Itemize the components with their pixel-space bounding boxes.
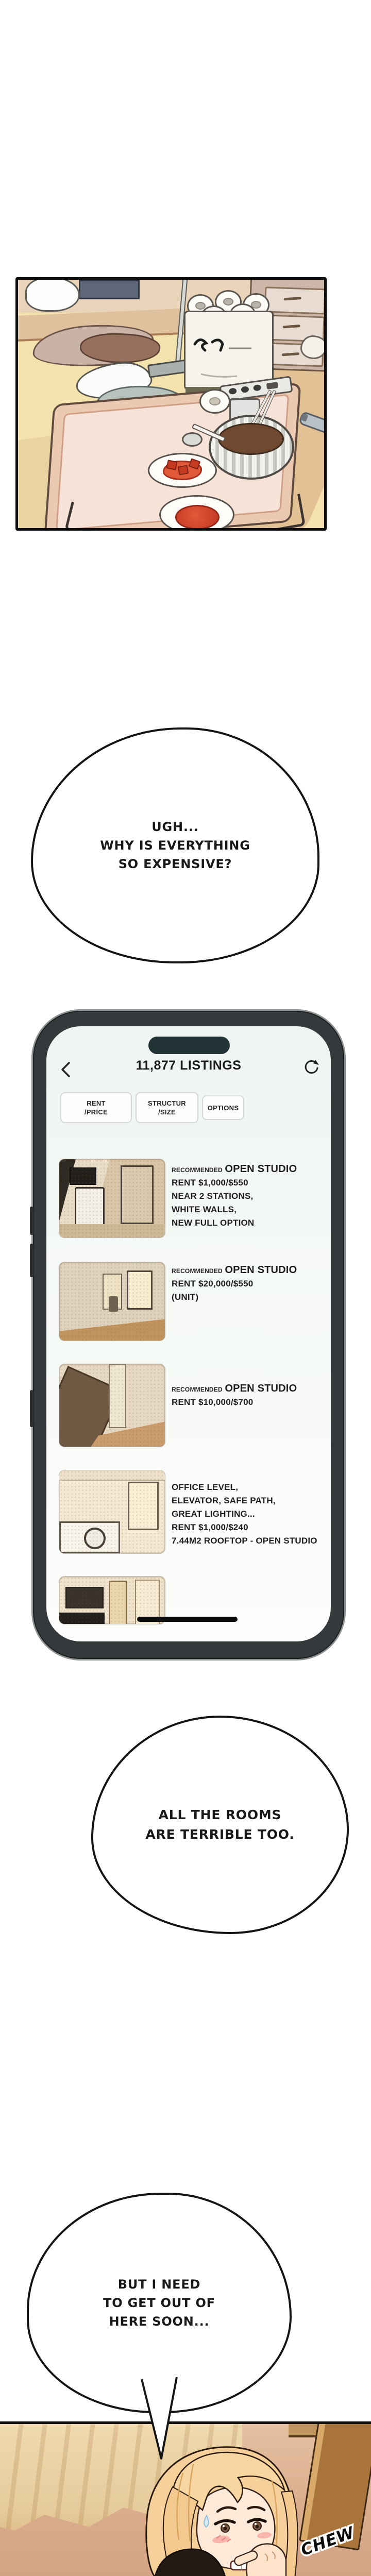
volume-down-button[interactable] xyxy=(30,1244,33,1277)
table-leg xyxy=(269,494,306,531)
plate-sauce xyxy=(159,495,234,531)
crumpled-paper xyxy=(300,335,327,359)
panel-kitchen xyxy=(15,277,327,531)
filter-structure-size[interactable]: STRUCTUR /SIZE xyxy=(136,1092,198,1123)
listing-row[interactable]: RECOMMENDED OPEN STUDIO RENT $20,000/$55… xyxy=(59,1262,331,1350)
refresh-icon xyxy=(302,1059,319,1077)
toilet-paper-pack xyxy=(184,290,275,389)
listing-badge: RECOMMENDED xyxy=(172,1267,223,1275)
listing-details: RENT $1,000/$550 NEAR 2 STATIONS, WHITE … xyxy=(172,1176,297,1230)
phone-screen: 11,877 LISTINGS RENT /PRICE STRUCTUR /SI… xyxy=(46,1026,331,1641)
refresh-button[interactable] xyxy=(302,1059,319,1079)
filter-options[interactable]: OPTIONS xyxy=(202,1095,244,1120)
webtoon-page: UGH... WHY IS EVERYTHING SO EXPENSIVE? 1… xyxy=(0,0,371,2576)
plate-tteokbokki xyxy=(148,453,217,488)
tp-label-scribble xyxy=(185,312,268,384)
metal-bowl xyxy=(209,415,294,480)
volume-up-button[interactable] xyxy=(30,1207,33,1235)
listing-details: OFFICE LEVEL, ELEVATOR, SAFE PATH, GREAT… xyxy=(172,1481,317,1548)
listing-badge: RECOMMENDED xyxy=(172,1386,223,1393)
toilet-paper-roll xyxy=(199,389,230,414)
listing-row[interactable]: RECOMMENDED OPEN STUDIO RENT $10,000/$70… xyxy=(59,1364,331,1453)
spoon xyxy=(182,432,203,447)
speech-bubble-2: ALL THE ROOMS ARE TERRIBLE TOO. xyxy=(91,1716,349,1934)
speech-bubble-tail xyxy=(126,2370,193,2468)
dynamic-island xyxy=(148,1037,230,1054)
listing-title: OPEN STUDIO xyxy=(225,1264,297,1276)
listing-title: OPEN STUDIO xyxy=(225,1383,297,1394)
listing-row[interactable]: OFFICE LEVEL, ELEVATOR, SAFE PATH, GREAT… xyxy=(59,1470,331,1559)
pillow xyxy=(25,277,80,312)
listing-photo xyxy=(59,1159,165,1238)
power-button[interactable] xyxy=(30,1390,33,1427)
listing-photo xyxy=(59,1364,165,1447)
listing-photo xyxy=(59,1262,165,1341)
listing-details: RENT $20,000/$550 (UNIT) xyxy=(172,1277,297,1304)
listings-count-title: 11,877 LISTINGS xyxy=(46,1058,331,1073)
mattress xyxy=(79,280,140,299)
bowl-contents xyxy=(218,423,284,455)
listing-badge: RECOMMENDED xyxy=(172,1166,223,1174)
home-indicator[interactable] xyxy=(137,1617,238,1622)
filter-rent-price[interactable]: RENT /PRICE xyxy=(60,1092,132,1123)
listing-row[interactable]: RECOMMENDED OPEN STUDIO RENT $1,000/$550… xyxy=(59,1159,331,1247)
phone: 11,877 LISTINGS RENT /PRICE STRUCTUR /SI… xyxy=(33,1011,344,1659)
speech-bubble-1: UGH... WHY IS EVERYTHING SO EXPENSIVE? xyxy=(31,727,319,963)
listing-details: RENT $10,000/$700 xyxy=(172,1396,297,1409)
listing-photo xyxy=(59,1470,165,1553)
listing-title: OPEN STUDIO xyxy=(225,1163,297,1175)
